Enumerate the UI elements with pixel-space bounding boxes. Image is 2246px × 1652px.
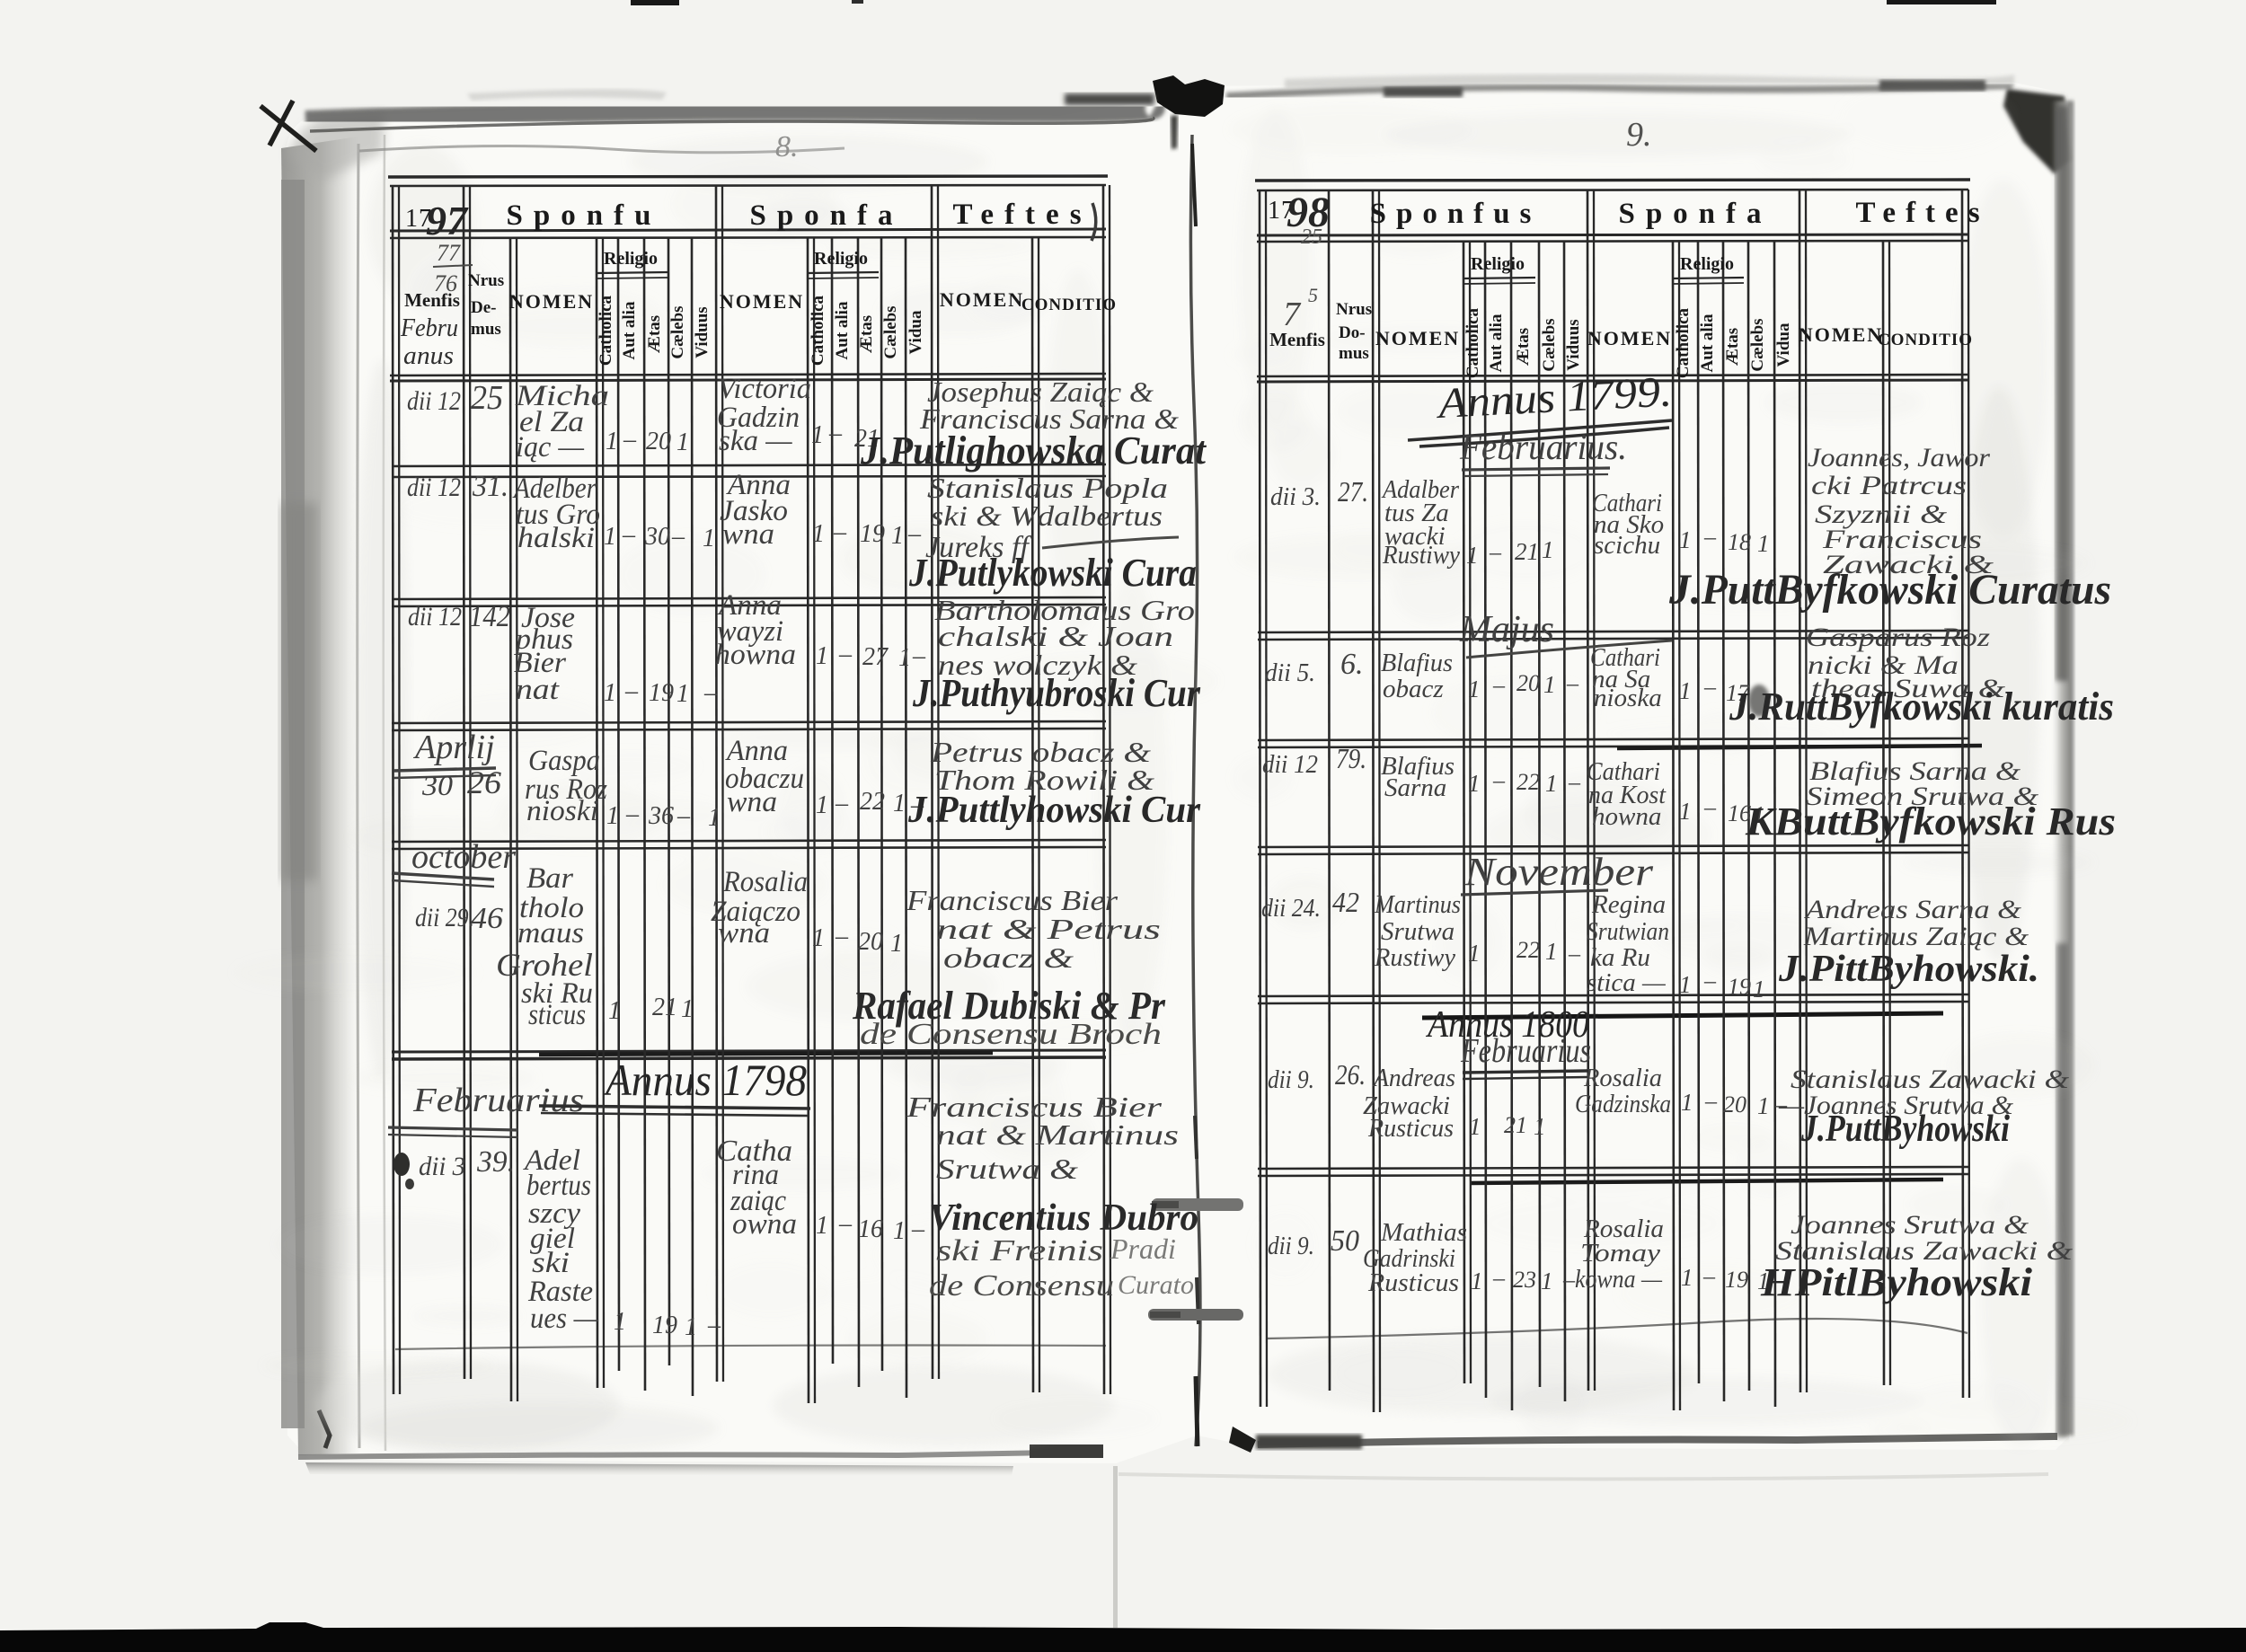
svg-text:Martinus Zaiąc &: Martinus Zaiąc & (1803, 922, 2029, 951)
svg-text:–: – (907, 520, 922, 548)
svg-text:Andreas: Andreas (1372, 1064, 1455, 1092)
svg-text:1: 1 (1679, 526, 1692, 553)
svg-text:dii 5.: dii 5. (1265, 659, 1315, 687)
svg-text:Ætas: Ætas (645, 315, 664, 353)
svg-text:maus: maus (517, 917, 584, 950)
svg-text:Tomay: Tomay (1580, 1239, 1660, 1268)
svg-text:20: 20 (858, 928, 883, 956)
svg-text:–: – (1703, 967, 1717, 994)
svg-text:39.: 39. (476, 1145, 515, 1179)
svg-text:22: 22 (1516, 937, 1540, 963)
svg-text:–: – (1703, 674, 1717, 700)
svg-text:october: october (411, 838, 516, 876)
svg-text:23: 23 (1513, 1267, 1536, 1293)
svg-text:Nrus: Nrus (1336, 300, 1372, 319)
svg-text:J.PuttByhowski: J.PuttByhowski (1800, 1109, 2010, 1150)
svg-text:de Consensu Broch: de Consensu Broch (860, 1018, 1162, 1051)
svg-text:Cælebs: Cælebs (1748, 318, 1767, 371)
svg-text:howna: howna (715, 639, 796, 671)
svg-text:1: 1 (1545, 938, 1558, 965)
svg-text:nat & Martinus: nat & Martinus (936, 1118, 1179, 1151)
svg-text:Joannes, Jawor: Joannes, Jawor (1808, 443, 1990, 473)
svg-text:Aut alia: Aut alia (833, 301, 852, 359)
svg-text:46: 46 (471, 902, 503, 935)
svg-text:ski Freinis: ski Freinis (936, 1234, 1103, 1268)
svg-text:1: 1 (890, 930, 903, 958)
svg-text:scichu: scichu (1594, 531, 1660, 560)
svg-text:1: 1 (606, 802, 619, 830)
svg-text:1: 1 (1471, 1268, 1483, 1294)
svg-text:Aut alia: Aut alia (620, 301, 639, 359)
svg-text:142: 142 (469, 600, 510, 633)
svg-text:dii 29.: dii 29. (415, 903, 474, 932)
svg-text:Cælebs: Cælebs (1540, 318, 1559, 371)
svg-text:1: 1 (604, 679, 616, 707)
svg-text:HPitlByhowski: HPitlByhowski (1760, 1260, 2033, 1304)
svg-text:1: 1 (676, 428, 689, 456)
svg-text:8.: 8. (775, 130, 799, 163)
svg-text:dii 3: dii 3 (419, 1152, 465, 1181)
svg-text:26: 26 (467, 764, 501, 800)
svg-text:Vidua: Vidua (906, 310, 925, 354)
svg-text:NOMEN: NOMEN (1587, 327, 1672, 349)
svg-text:Rusticus: Rusticus (1367, 1268, 1459, 1297)
svg-text:20: 20 (1723, 1091, 1746, 1118)
svg-text:–: – (838, 640, 853, 668)
svg-text:nioska: nioska (1594, 684, 1662, 712)
svg-text:26.: 26. (1335, 1058, 1366, 1091)
svg-text:19: 19 (1725, 1267, 1748, 1293)
svg-text:Religio: Religio (814, 249, 868, 269)
svg-text:1: 1 (1753, 976, 1765, 1003)
svg-text:Martinus: Martinus (1374, 890, 1461, 919)
svg-text:Februarius: Februarius (1460, 1032, 1591, 1070)
svg-text:1: 1 (1545, 770, 1558, 797)
svg-text:–: – (1489, 539, 1502, 565)
svg-text:J.Puthyubroski Cur: J.Puthyubroski Cur (912, 671, 1201, 715)
svg-text:dii 9.: dii 9. (1268, 1232, 1314, 1260)
svg-text:Blafius: Blafius (1381, 649, 1453, 677)
svg-text:25: 25 (471, 379, 503, 417)
svg-text:dii 12: dii 12 (407, 386, 461, 416)
svg-text:nat: nat (516, 674, 560, 706)
svg-text:21: 21 (652, 994, 677, 1021)
svg-text:Rustiwy: Rustiwy (1382, 541, 1460, 570)
svg-text:–: – (624, 677, 639, 705)
svg-text:–: – (1566, 670, 1579, 696)
svg-text:–: – (835, 790, 849, 817)
svg-text:1: 1 (1466, 542, 1479, 569)
svg-text:J.RuttByfkowski kuratis: J.RuttByfkowski kuratis (1729, 685, 2114, 729)
svg-text:dii 12: dii 12 (407, 473, 461, 502)
svg-text:–: – (625, 800, 640, 828)
svg-text:1: 1 (1681, 1264, 1693, 1291)
svg-text:9.: 9. (1626, 116, 1652, 154)
svg-text:–: – (622, 521, 636, 549)
svg-text:J.PuttByfkowski Curatus: J.PuttByfkowski Curatus (1668, 566, 2111, 614)
svg-text:20: 20 (1516, 670, 1540, 696)
svg-text:79.: 79. (1336, 742, 1366, 774)
svg-text:De-: De- (471, 298, 496, 317)
svg-text:1: 1 (816, 791, 828, 819)
svg-text:dii 9.: dii 9. (1268, 1066, 1314, 1094)
svg-text:31.: 31. (472, 470, 508, 503)
svg-text:1: 1 (1541, 1268, 1553, 1294)
svg-text:–: – (676, 802, 691, 830)
svg-text:–: – (912, 642, 926, 670)
svg-text:Catholica: Catholica (1674, 307, 1693, 378)
svg-text:1: 1 (608, 997, 621, 1025)
svg-text:30: 30 (421, 769, 453, 801)
svg-text:Sponfus: Sponfus (1370, 198, 1542, 230)
svg-text:Sponfa: Sponfa (1618, 198, 1772, 230)
svg-text:NOMEN: NOMEN (1375, 327, 1460, 349)
svg-text:Sponfa: Sponfa (749, 199, 903, 232)
svg-text:Mathias: Mathias (1380, 1218, 1467, 1247)
svg-text:50: 50 (1331, 1224, 1359, 1258)
svg-text:Ætas: Ætas (1514, 328, 1533, 366)
svg-text:Ætas: Ætas (857, 315, 876, 353)
svg-text:Catholica: Catholica (1463, 307, 1482, 378)
svg-text:–: – (623, 426, 637, 454)
svg-text:1: 1 (1679, 798, 1692, 825)
svg-text:Majus: Majus (1459, 609, 1554, 650)
svg-text:November: November (1463, 850, 1654, 894)
svg-text:1: 1 (1468, 770, 1481, 797)
svg-text:1: 1 (898, 644, 911, 672)
svg-text:Aut alia: Aut alia (1698, 314, 1717, 372)
svg-text:–: – (1703, 524, 1717, 550)
svg-text:–: – (835, 923, 849, 950)
svg-text:–: – (1703, 794, 1717, 820)
svg-text:Gadzinska: Gadzinska (1575, 1091, 1671, 1118)
svg-text:20: 20 (646, 428, 671, 455)
svg-text:–: – (1568, 769, 1581, 795)
svg-text:19: 19 (1728, 974, 1751, 1000)
svg-text:Curato: Curato (1118, 1270, 1194, 1300)
svg-text:stica —: stica — (1587, 968, 1666, 997)
svg-text:27.: 27. (1338, 475, 1368, 508)
svg-text:howna: howna (1592, 802, 1661, 831)
svg-text:42: 42 (1332, 886, 1359, 918)
svg-text:Gaspa: Gaspa (528, 745, 600, 777)
svg-text:kowna —: kowna — (1575, 1265, 1662, 1294)
svg-text:Sponfu: Sponfu (507, 199, 662, 232)
svg-text:–: – (828, 420, 843, 447)
svg-text:Nrus: Nrus (468, 271, 504, 290)
svg-text:Andreas Sarna &: Andreas Sarna & (1804, 895, 2022, 924)
svg-text:1: 1 (681, 995, 694, 1023)
svg-text:CONDITIO: CONDITIO (1878, 331, 1973, 349)
svg-text:NOMEN: NOMEN (720, 290, 804, 313)
svg-text:chalski & Joan: chalski & Joan (938, 620, 1173, 652)
svg-text:nioski: nioski (526, 795, 598, 827)
svg-text:halski: halski (517, 522, 595, 554)
svg-text:–: – (1704, 1088, 1718, 1114)
svg-text:–: – (833, 518, 847, 546)
svg-text:Rustiwy: Rustiwy (1374, 943, 1455, 972)
svg-text:dii 3.: dii 3. (1270, 483, 1321, 511)
svg-text:cki Patrcus: cki Patrcus (1811, 471, 1967, 500)
svg-text:21: 21 (1515, 538, 1539, 565)
svg-text:–: – (1492, 1265, 1506, 1291)
svg-text:–: – (1492, 672, 1506, 698)
svg-text:–: – (838, 1210, 853, 1238)
svg-text:mus: mus (1339, 344, 1369, 363)
svg-text:Aprlij: Aprlij (412, 729, 495, 766)
svg-text:Ætas: Ætas (1723, 328, 1742, 366)
svg-text:1: 1 (1757, 1092, 1770, 1119)
svg-text:1: 1 (812, 924, 825, 952)
svg-text:CONDITIO: CONDITIO (1021, 296, 1117, 314)
svg-text:Srutwian: Srutwian (1587, 917, 1669, 946)
svg-text:Gasparus Roz: Gasparus Roz (1806, 623, 1990, 652)
svg-text:Religio: Religio (604, 249, 658, 269)
svg-text:J.PittByhowski.: J.PittByhowski. (1778, 949, 2039, 990)
svg-text:21: 21 (1504, 1112, 1527, 1138)
svg-text:–: – (703, 679, 718, 707)
svg-text:Teftes: Teftes (1855, 197, 1989, 229)
svg-text:Franciscus Bier: Franciscus Bier (906, 884, 1119, 916)
svg-text:ska —: ska — (719, 425, 792, 457)
svg-text:1: 1 (811, 421, 824, 449)
svg-text:Teftes: Teftes (952, 199, 1092, 231)
svg-text:ski: ski (532, 1247, 570, 1279)
svg-text:wna: wna (718, 917, 770, 950)
svg-text:wna: wna (727, 786, 777, 818)
svg-text:–: – (1568, 941, 1581, 967)
svg-text:Catholica: Catholica (809, 295, 827, 366)
svg-text:sticus: sticus (528, 999, 586, 1031)
svg-text:Srutwa &: Srutwa & (936, 1153, 1078, 1185)
svg-text:19: 19 (652, 1312, 677, 1339)
svg-text:NOMEN: NOMEN (509, 290, 594, 313)
svg-text:J.Puttlyhowski Cur: J.Puttlyhowski Cur (907, 790, 1201, 831)
svg-text:ues —: ues — (530, 1303, 599, 1335)
svg-text:Srutwa: Srutwa (1381, 917, 1455, 946)
svg-text:22: 22 (860, 788, 885, 816)
svg-text:de Consensu: de Consensu (929, 1269, 1114, 1303)
svg-text:Rosalia: Rosalia (722, 866, 808, 898)
svg-text:owna: owna (732, 1208, 797, 1241)
svg-text:18: 18 (1728, 529, 1751, 555)
svg-text:Menfis: Menfis (1269, 329, 1325, 350)
svg-text:Catholica: Catholica (597, 295, 615, 366)
svg-text:30: 30 (644, 523, 670, 551)
svg-text:wna: wna (722, 518, 774, 551)
svg-text:1: 1 (812, 520, 825, 548)
svg-text:1: 1 (606, 428, 618, 455)
svg-text:1: 1 (1679, 677, 1692, 704)
svg-text:1: 1 (893, 1217, 906, 1245)
svg-text:NOMEN: NOMEN (940, 288, 1024, 311)
svg-text:1: 1 (1542, 536, 1554, 563)
svg-text:–: – (1702, 1263, 1716, 1289)
svg-text:77: 77 (437, 240, 461, 266)
svg-text:Regina: Regina (1591, 890, 1666, 919)
svg-text:anus: anus (403, 341, 454, 370)
svg-text:36: 36 (648, 802, 674, 830)
svg-text:Religio: Religio (1471, 254, 1525, 274)
svg-text:1: 1 (816, 1212, 828, 1240)
svg-text:Annus 1798: Annus 1798 (603, 1055, 807, 1105)
svg-text:1: 1 (816, 642, 828, 670)
svg-text:1: 1 (1468, 940, 1481, 967)
svg-text:1: 1 (676, 680, 689, 708)
svg-text:Rusticus: Rusticus (1367, 1114, 1454, 1143)
svg-text:Religio: Religio (1680, 254, 1734, 274)
svg-text:1: 1 (604, 523, 616, 551)
svg-text:1: 1 (614, 1308, 626, 1336)
svg-text:Vidua: Vidua (1774, 322, 1793, 367)
svg-text:dii 24.: dii 24. (1261, 895, 1321, 923)
svg-text:19: 19 (649, 679, 674, 707)
svg-text:Menfis: Menfis (404, 289, 460, 311)
svg-text:Cælebs: Cælebs (881, 305, 900, 358)
svg-text:1: 1 (685, 1313, 697, 1341)
svg-text:Febru: Febru (400, 314, 458, 342)
svg-text:iąc —: iąc — (516, 431, 585, 464)
svg-text:Aut alia: Aut alia (1487, 314, 1506, 372)
svg-text:–: – (911, 1215, 925, 1243)
svg-text:obacz &: obacz & (943, 941, 1074, 974)
svg-text:dii 12: dii 12 (408, 602, 462, 632)
svg-text:Sarna: Sarna (1384, 773, 1446, 802)
svg-text:1: 1 (703, 525, 715, 552)
svg-text:25: 25 (1301, 225, 1322, 249)
svg-text:Bar: Bar (526, 862, 573, 895)
svg-text:Rosalia: Rosalia (1583, 1064, 1662, 1092)
svg-text:J.Putlighowska Curat: J.Putlighowska Curat (860, 428, 1207, 473)
svg-text:obacz: obacz (1383, 675, 1444, 703)
svg-text:1: 1 (1681, 1089, 1693, 1116)
svg-text:–: – (1492, 767, 1506, 793)
svg-text:1: 1 (1534, 1113, 1546, 1140)
svg-text:Viduus: Viduus (693, 306, 712, 358)
svg-text:6.: 6. (1340, 648, 1364, 681)
svg-text:Victoria: Victoria (718, 373, 811, 405)
svg-text:1: 1 (1543, 671, 1556, 698)
svg-text:7: 7 (1283, 296, 1302, 333)
svg-text:1: 1 (1469, 1113, 1481, 1140)
svg-text:22: 22 (1516, 769, 1540, 795)
svg-text:–: – (671, 523, 685, 551)
svg-text:ski & Wdalbertus: ski & Wdalbertus (931, 499, 1163, 532)
svg-text:Viduus: Viduus (1564, 319, 1583, 370)
svg-text:Februarius.: Februarius. (1459, 427, 1627, 467)
svg-text:5: 5 (1308, 284, 1318, 306)
svg-text:97: 97 (426, 198, 469, 243)
svg-text:27: 27 (862, 643, 889, 671)
svg-text:19: 19 (860, 520, 885, 548)
svg-text:mus: mus (471, 320, 501, 339)
svg-text:1: 1 (891, 522, 904, 550)
svg-text:J.Putlykowski Cura: J.Putlykowski Cura (908, 551, 1197, 595)
svg-text:nat & Petrus: nat & Petrus (936, 913, 1161, 945)
svg-text:Do-: Do- (1339, 323, 1366, 342)
svg-text:dii 12: dii 12 (1262, 751, 1318, 779)
svg-text:Pradi: Pradi (1110, 1232, 1176, 1265)
svg-text:KButtByfkowski Rus: KButtByfkowski Rus (1745, 799, 2116, 844)
svg-text:Cælebs: Cælebs (668, 305, 687, 358)
svg-text:1: 1 (893, 790, 906, 817)
svg-text:16: 16 (858, 1215, 883, 1243)
svg-text:–: – (707, 1312, 721, 1339)
svg-text:NOMEN: NOMEN (1799, 323, 1883, 346)
svg-text:1: 1 (1757, 530, 1770, 557)
svg-text:–: – (1562, 1267, 1576, 1293)
svg-text:1: 1 (708, 804, 721, 832)
svg-text:1: 1 (1679, 971, 1692, 998)
svg-text:1: 1 (1468, 676, 1481, 702)
